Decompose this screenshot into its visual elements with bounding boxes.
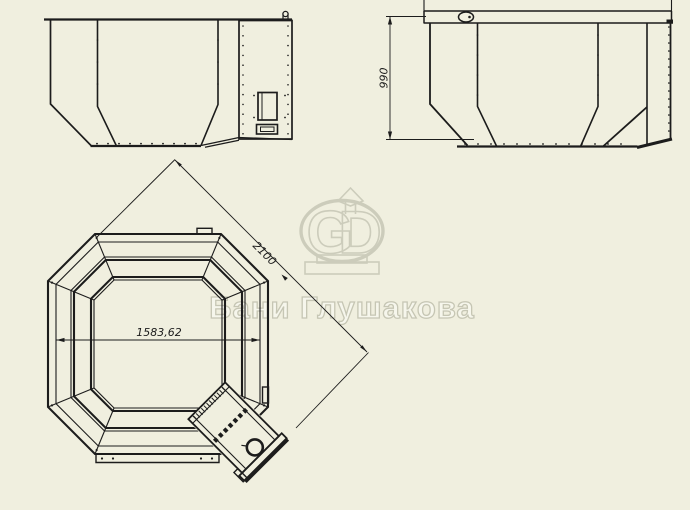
chimney-stub [283, 11, 288, 19]
arrow-right-icon [252, 338, 260, 342]
arrow-left-icon [57, 338, 65, 342]
stove-door [258, 93, 277, 121]
technical-drawing-canvas: G D Бани Глушакова [0, 0, 690, 510]
arrow-down-icon [388, 132, 392, 140]
apron-dots [101, 457, 213, 459]
fastener-dots-side [464, 26, 669, 145]
drain-fitting-dot [468, 16, 471, 19]
drain-fitting [459, 12, 474, 22]
left-inner-wall [478, 23, 497, 146]
stove-mask [187, 381, 286, 480]
dimension-1583: 1583,62 [57, 326, 260, 342]
arrow-mid-icon [282, 275, 288, 281]
drawing-svg: G D Бани Глушакова [0, 0, 690, 510]
left-outer-wall [51, 20, 92, 146]
left-inner-wall [98, 20, 117, 147]
stove-plan [184, 380, 288, 484]
logo-letter-d: D [338, 199, 381, 266]
left-outer-wall [430, 23, 468, 146]
watermark-logo: G D [301, 188, 383, 274]
dimension-990: 990 [378, 17, 475, 140]
stove-housing-panel [239, 21, 292, 140]
dimension-height-label: 990 [378, 68, 391, 89]
right-outer-wall-slope [604, 107, 648, 146]
ash-drawer-handle [261, 127, 275, 132]
dimension-diagonal-label: 2100 [250, 239, 279, 268]
side-elevation-view: 990 [378, 0, 674, 148]
dimension-width-label: 1583,62 [136, 326, 182, 339]
arrow-up-icon [388, 17, 392, 25]
stove-skid [637, 139, 672, 148]
fastener-dots-front [96, 25, 289, 144]
rim-upper-stubs [424, 0, 672, 11]
right-inner-wall [581, 23, 599, 147]
right-inner-wall [201, 20, 218, 146]
front-elevation-view [44, 11, 292, 147]
watermark-brand-text: Бани Глушакова [209, 290, 474, 325]
rim-end-cap [667, 20, 674, 24]
